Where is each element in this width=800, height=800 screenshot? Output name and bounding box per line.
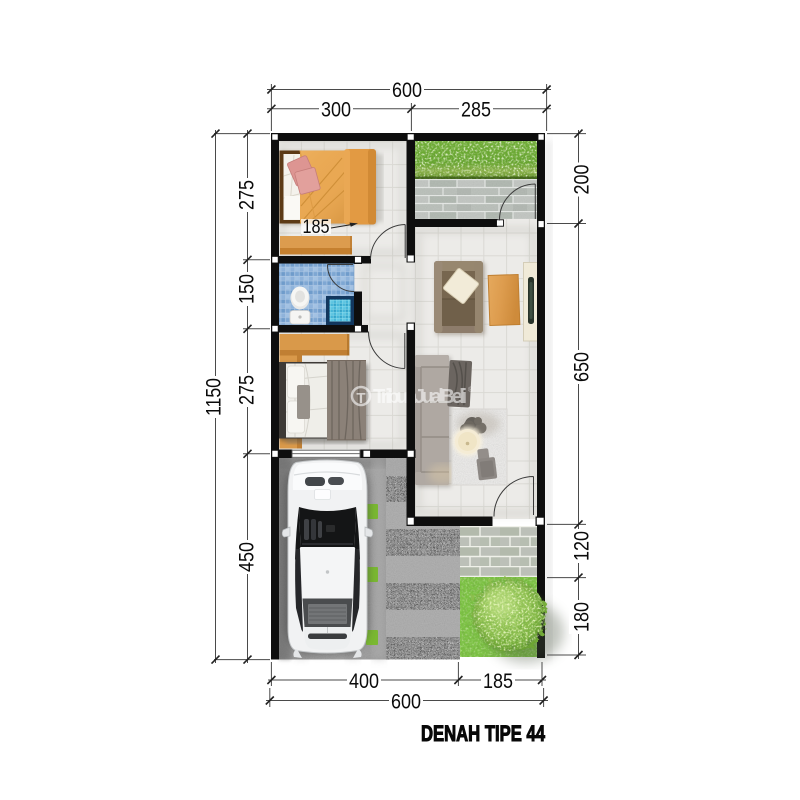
svg-text:300: 300 <box>321 98 351 121</box>
svg-text:180: 180 <box>571 602 594 632</box>
svg-text:185: 185 <box>303 217 330 238</box>
svg-text:275: 275 <box>236 180 259 210</box>
svg-text:185: 185 <box>483 670 513 693</box>
svg-text:120: 120 <box>571 531 594 561</box>
svg-text:650: 650 <box>571 352 594 382</box>
svg-text:200: 200 <box>571 165 594 195</box>
svg-text:600: 600 <box>391 690 421 713</box>
svg-text:150: 150 <box>236 274 259 304</box>
svg-text:600: 600 <box>392 79 422 102</box>
svg-text:TribunJualBeli: TribunJualBeli <box>373 386 467 408</box>
svg-text:275: 275 <box>236 375 259 405</box>
svg-text:285: 285 <box>461 98 491 121</box>
svg-text:®: ® <box>468 386 474 394</box>
svg-text:400: 400 <box>349 670 379 693</box>
svg-text:DENAH TIPE 44: DENAH TIPE 44 <box>421 721 546 746</box>
svg-text:T: T <box>356 390 365 407</box>
svg-text:450: 450 <box>236 542 259 572</box>
svg-text:1150: 1150 <box>203 378 226 416</box>
